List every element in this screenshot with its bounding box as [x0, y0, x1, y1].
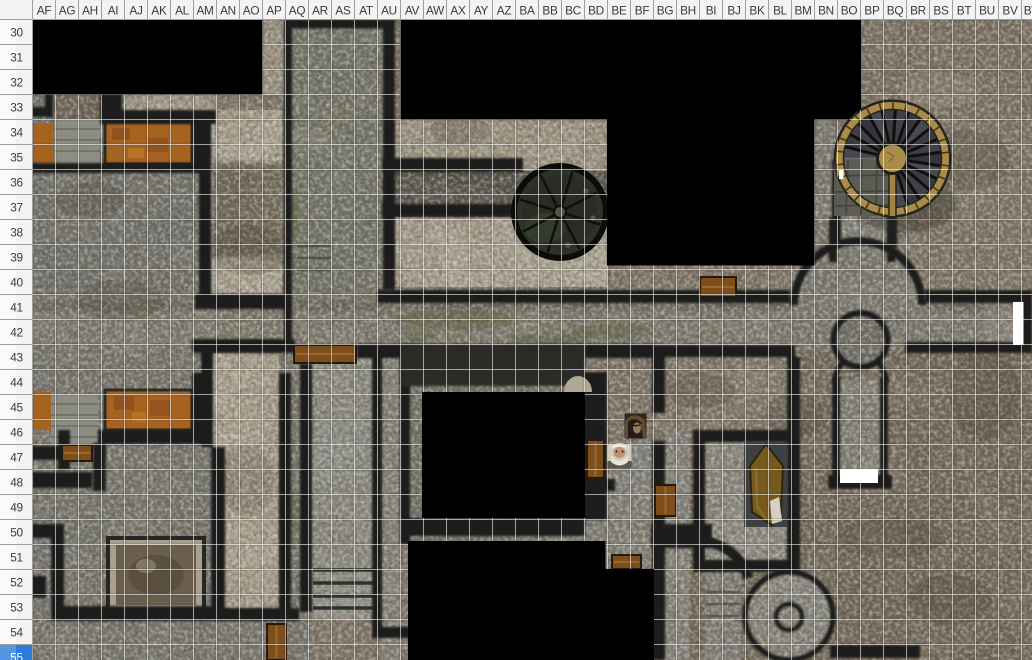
svg-text:31: 31: [10, 51, 23, 65]
svg-text:BE: BE: [611, 4, 627, 18]
svg-text:AS: AS: [335, 4, 351, 18]
svg-text:BR: BR: [910, 4, 926, 18]
svg-text:AQ: AQ: [289, 4, 306, 18]
svg-text:44: 44: [10, 376, 23, 390]
svg-text:AZ: AZ: [497, 4, 512, 18]
svg-text:AH: AH: [82, 4, 98, 18]
svg-text:35: 35: [10, 151, 23, 165]
svg-text:46: 46: [10, 426, 23, 440]
svg-text:BP: BP: [864, 4, 880, 18]
svg-text:42: 42: [10, 326, 23, 340]
svg-text:AV: AV: [405, 4, 420, 18]
svg-text:AX: AX: [450, 4, 466, 18]
svg-text:AO: AO: [243, 4, 260, 18]
svg-text:AM: AM: [196, 4, 213, 18]
svg-text:BO: BO: [841, 4, 858, 18]
svg-text:AK: AK: [151, 4, 167, 18]
svg-text:BU: BU: [979, 4, 995, 18]
svg-text:BI: BI: [706, 4, 717, 18]
svg-text:AI: AI: [108, 4, 119, 18]
svg-text:BT: BT: [957, 4, 972, 18]
svg-text:BD: BD: [588, 4, 604, 18]
svg-text:32: 32: [10, 76, 23, 90]
svg-text:49: 49: [10, 501, 23, 515]
svg-text:BF: BF: [635, 4, 650, 18]
svg-text:BW: BW: [1024, 4, 1032, 18]
svg-text:BA: BA: [519, 4, 535, 18]
svg-text:AY: AY: [474, 4, 489, 18]
svg-text:40: 40: [10, 276, 23, 290]
svg-text:BS: BS: [933, 4, 949, 18]
svg-text:AR: AR: [312, 4, 328, 18]
svg-text:BH: BH: [680, 4, 696, 18]
svg-text:AL: AL: [175, 4, 190, 18]
svg-text:52: 52: [10, 576, 23, 590]
svg-text:BN: BN: [818, 4, 834, 18]
svg-text:30: 30: [10, 26, 23, 40]
svg-text:AW: AW: [426, 4, 445, 18]
svg-text:AN: AN: [220, 4, 236, 18]
svg-text:34: 34: [10, 126, 23, 140]
svg-text:AJ: AJ: [129, 4, 143, 18]
svg-text:37: 37: [10, 201, 23, 215]
svg-text:AF: AF: [37, 4, 52, 18]
svg-text:AG: AG: [59, 4, 76, 18]
svg-text:47: 47: [10, 451, 23, 465]
svg-text:45: 45: [10, 401, 23, 415]
svg-text:BK: BK: [749, 4, 765, 18]
svg-text:54: 54: [10, 626, 23, 640]
svg-text:55: 55: [10, 651, 23, 660]
svg-text:BL: BL: [773, 4, 788, 18]
svg-text:51: 51: [10, 551, 23, 565]
svg-text:BM: BM: [794, 4, 811, 18]
svg-text:BC: BC: [565, 4, 582, 18]
svg-text:53: 53: [10, 601, 23, 615]
svg-text:AT: AT: [359, 4, 373, 18]
svg-text:AU: AU: [381, 4, 397, 18]
svg-text:50: 50: [10, 526, 23, 540]
svg-text:48: 48: [10, 476, 23, 490]
svg-text:BB: BB: [542, 4, 558, 18]
svg-text:BG: BG: [657, 4, 674, 18]
svg-text:AP: AP: [266, 4, 282, 18]
svg-text:43: 43: [10, 351, 23, 365]
svg-text:BV: BV: [1002, 4, 1018, 18]
svg-text:38: 38: [10, 226, 23, 240]
svg-text:41: 41: [10, 301, 23, 315]
svg-text:33: 33: [10, 101, 23, 115]
svg-text:36: 36: [10, 176, 23, 190]
svg-text:39: 39: [10, 251, 23, 265]
svg-text:BQ: BQ: [887, 4, 904, 18]
svg-text:BJ: BJ: [727, 4, 741, 18]
